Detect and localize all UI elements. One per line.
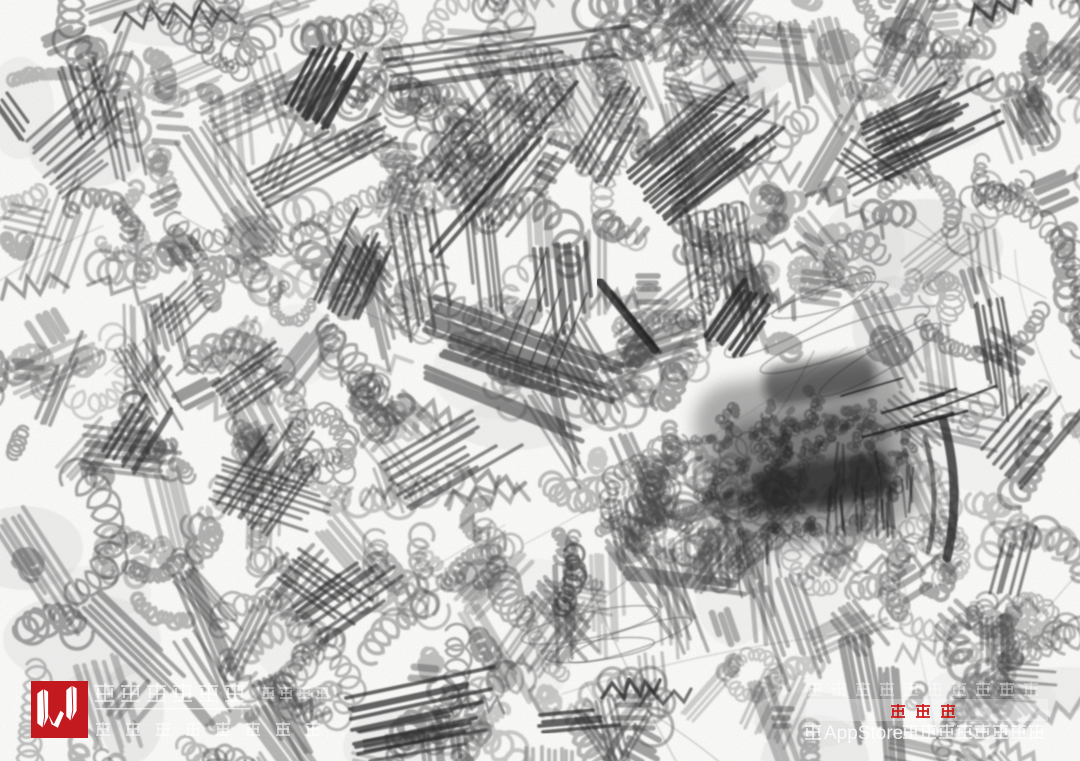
svg-text:AppStore: AppStore: [824, 723, 903, 744]
